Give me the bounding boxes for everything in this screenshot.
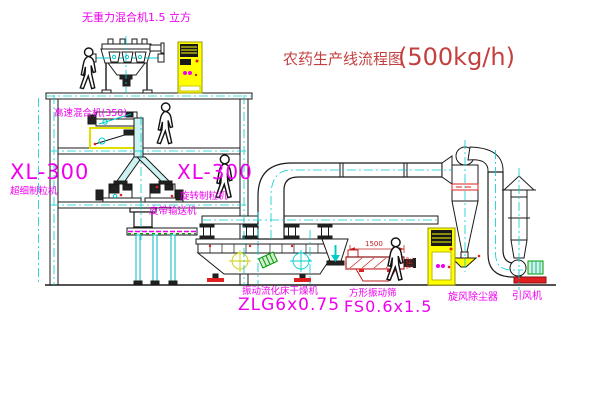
control-cabinet-top <box>178 42 202 93</box>
zero-gravity-mixer <box>90 39 164 93</box>
label-dryer-model: ZLG6x0.75 <box>238 297 340 314</box>
page-title: 农药生产线流程图 <box>283 52 403 67</box>
control-cabinet-right <box>428 228 455 285</box>
dimension-sieve-length: 1500 <box>365 241 383 248</box>
dimension-sieve-height: 345 <box>406 257 412 268</box>
label-sieve-model: FS0.6x1.5 <box>344 299 432 315</box>
label-pulverizer-name: 超细制粒机 <box>10 187 58 197</box>
person-figure <box>157 103 172 144</box>
label-high-speed-mixer: 高速混合机(350) <box>54 109 127 119</box>
flow-diagram: 无重力混合机1.5 立方 高速混合机(350) XL-300 超细制粒机 XL-… <box>0 0 600 403</box>
granulator-right <box>145 184 183 202</box>
y-chute <box>114 157 172 184</box>
granulator-left <box>96 184 141 202</box>
page-title-capacity: (500kg/h) <box>398 45 515 69</box>
label-pulverizer-model: XL-300 <box>10 162 89 183</box>
label-granulator-name: 旋转制粒机 <box>180 192 228 202</box>
label-zero-gravity-mixer: 无重力混合机1.5 立方 <box>82 12 191 23</box>
dryer-exhaust-duct <box>258 163 442 239</box>
label-fan: 引风机 <box>512 292 542 302</box>
label-cyclone: 旋风除尘器 <box>448 293 498 303</box>
label-belt-conveyor: 皮带输送机 <box>149 207 197 217</box>
induced-draft-fan <box>510 260 546 283</box>
label-granulator-model: XL-300 <box>177 162 253 182</box>
person-figure <box>387 238 403 280</box>
belt-conveyor <box>127 228 197 284</box>
